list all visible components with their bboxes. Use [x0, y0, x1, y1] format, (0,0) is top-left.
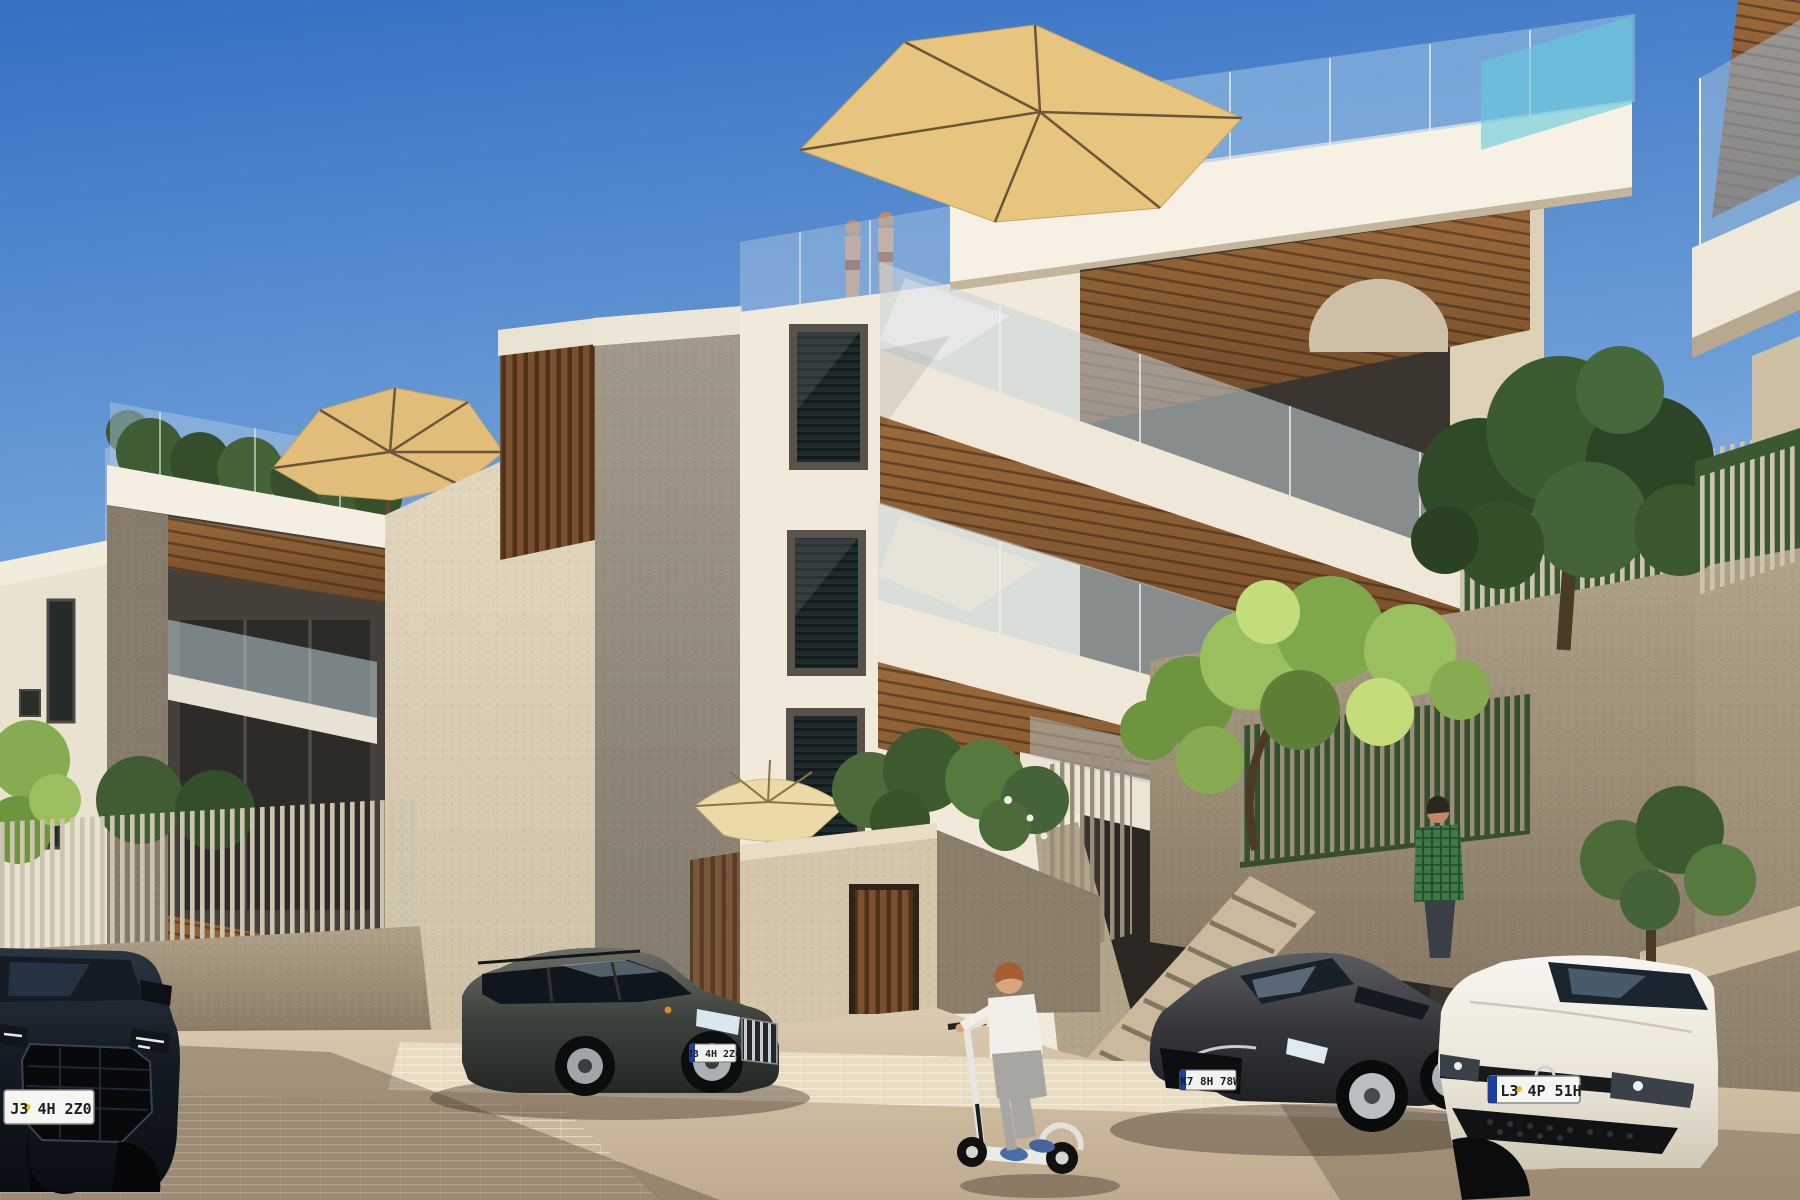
window-2 — [787, 530, 866, 676]
headlight-glint-2 — [1633, 1081, 1643, 1091]
wagon-rear-hub — [578, 1059, 592, 1073]
boy-tshirt — [988, 994, 1043, 1058]
timber-screen — [500, 334, 595, 560]
courtyard-door — [849, 884, 919, 1014]
front-wheel-hub — [966, 1146, 978, 1158]
headlight-glint — [1454, 1062, 1462, 1070]
sliver-window-1 — [48, 600, 74, 722]
window-1 — [789, 324, 868, 470]
wagon-plate: J3 4H 2Z0 — [687, 1044, 741, 1062]
suv-plate: J3 4H 2Z0 — [4, 1090, 94, 1124]
sedan-front-hub — [1364, 1088, 1380, 1104]
architectural-render-scene: J3 4H 2Z0 K7 8H 78W L3 4P 51H — [0, 0, 1800, 1200]
wagon-grille — [742, 1018, 777, 1064]
hatchback-plate-text: L3 4P 51H — [1500, 1082, 1581, 1100]
render-canvas: J3 4H 2Z0 K7 8H 78W L3 4P 51H — [0, 0, 1800, 1200]
wagon-plate-text: J3 4H 2Z0 — [687, 1049, 741, 1060]
man-shirt — [1414, 824, 1464, 902]
hatchback-plate: L3 4P 51H — [1488, 1076, 1582, 1103]
suv-plate-text: J3 4H 2Z0 — [10, 1100, 91, 1118]
wagon-side-marker — [665, 1007, 672, 1014]
sliver-window-2 — [20, 690, 40, 716]
white-hatchback: L3 4P 51H — [1438, 955, 1718, 1200]
scooter-shadow — [960, 1174, 1120, 1198]
sedan-plate-text: K7 8H 78W — [1180, 1075, 1240, 1088]
suv-front-left: J3 4H 2Z0 — [0, 948, 180, 1194]
rear-wheel-hub — [1056, 1152, 1069, 1165]
sedan-plate: K7 8H 78W — [1180, 1070, 1240, 1090]
